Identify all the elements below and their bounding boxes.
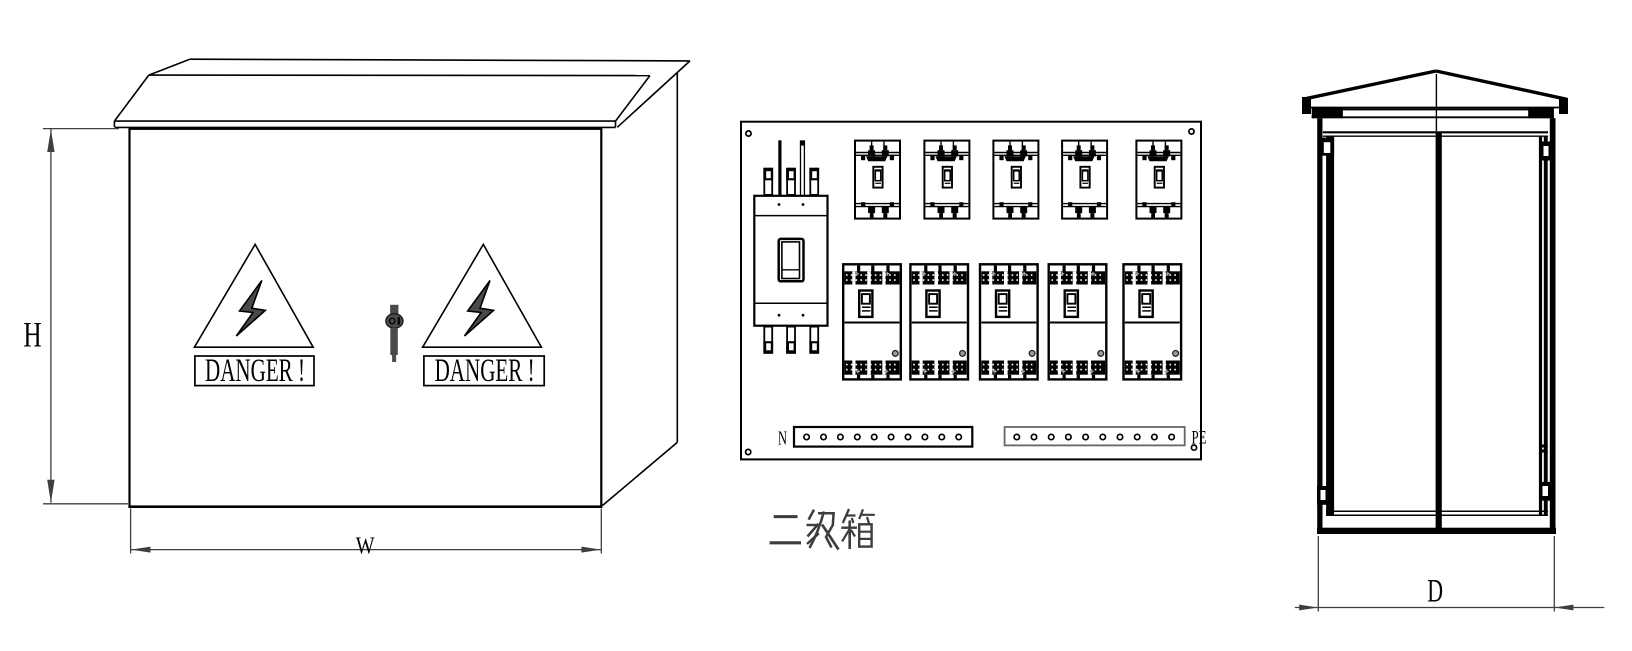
- svg-text:W: W: [356, 534, 375, 560]
- svg-text:N: N: [778, 428, 787, 450]
- svg-text:D: D: [1427, 573, 1443, 609]
- svg-text:DANGER !: DANGER !: [435, 353, 535, 389]
- svg-text:PE: PE: [1192, 428, 1207, 449]
- svg-text:H: H: [23, 315, 41, 355]
- svg-text:DANGER !: DANGER !: [205, 353, 305, 389]
